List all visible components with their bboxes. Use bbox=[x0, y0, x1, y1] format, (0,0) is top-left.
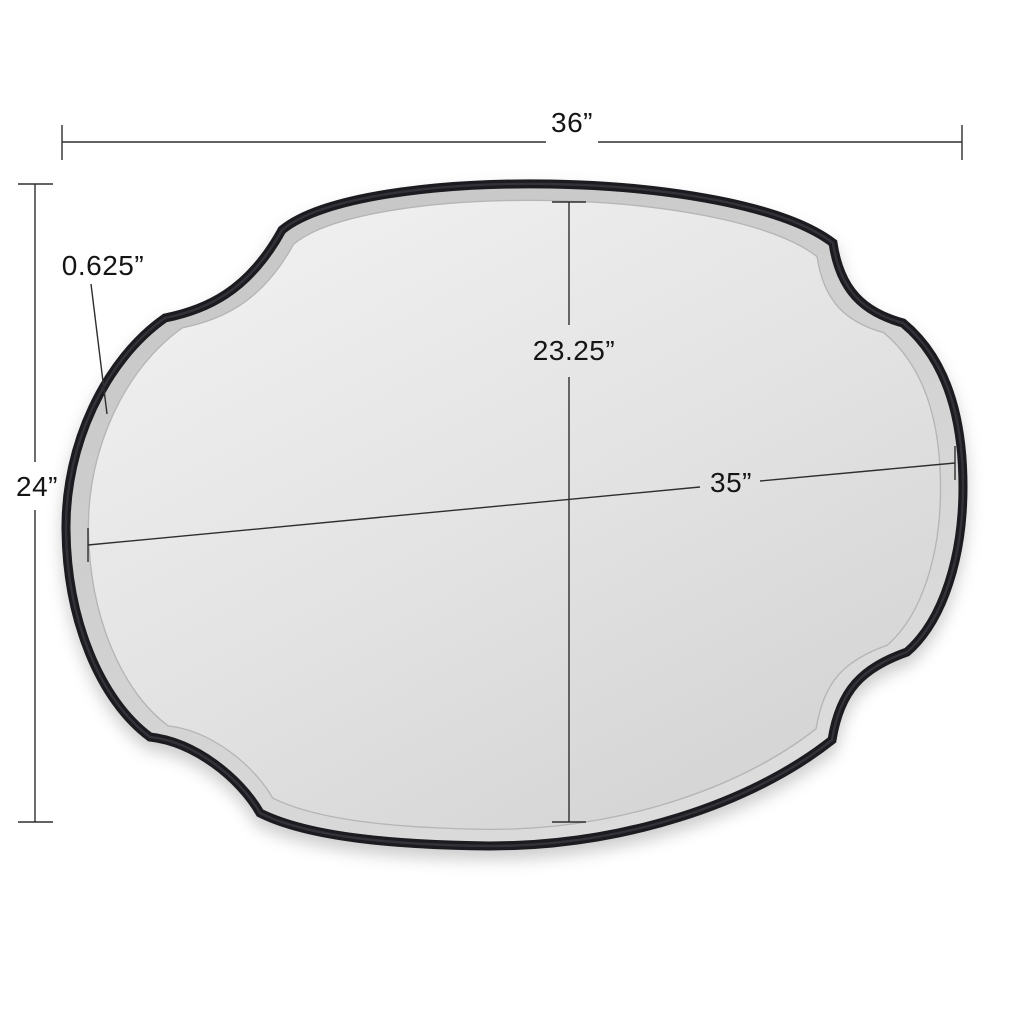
diagram-canvas: 36” 24” 0.625” 23.25” 35” bbox=[0, 0, 1024, 1024]
mirror-height-label: 23.25” bbox=[533, 335, 615, 366]
overall-width-dimension-line bbox=[62, 125, 962, 160]
overall-height-dimension-line bbox=[18, 184, 53, 822]
mirror bbox=[66, 184, 963, 846]
overall-height-label: 24” bbox=[16, 471, 58, 502]
mirror-width-label: 35” bbox=[710, 467, 752, 498]
frame-thickness-label: 0.625” bbox=[62, 250, 144, 281]
overall-width-label: 36” bbox=[551, 107, 593, 138]
mirror-dimension-diagram: 36” 24” 0.625” 23.25” 35” bbox=[0, 0, 1024, 1024]
